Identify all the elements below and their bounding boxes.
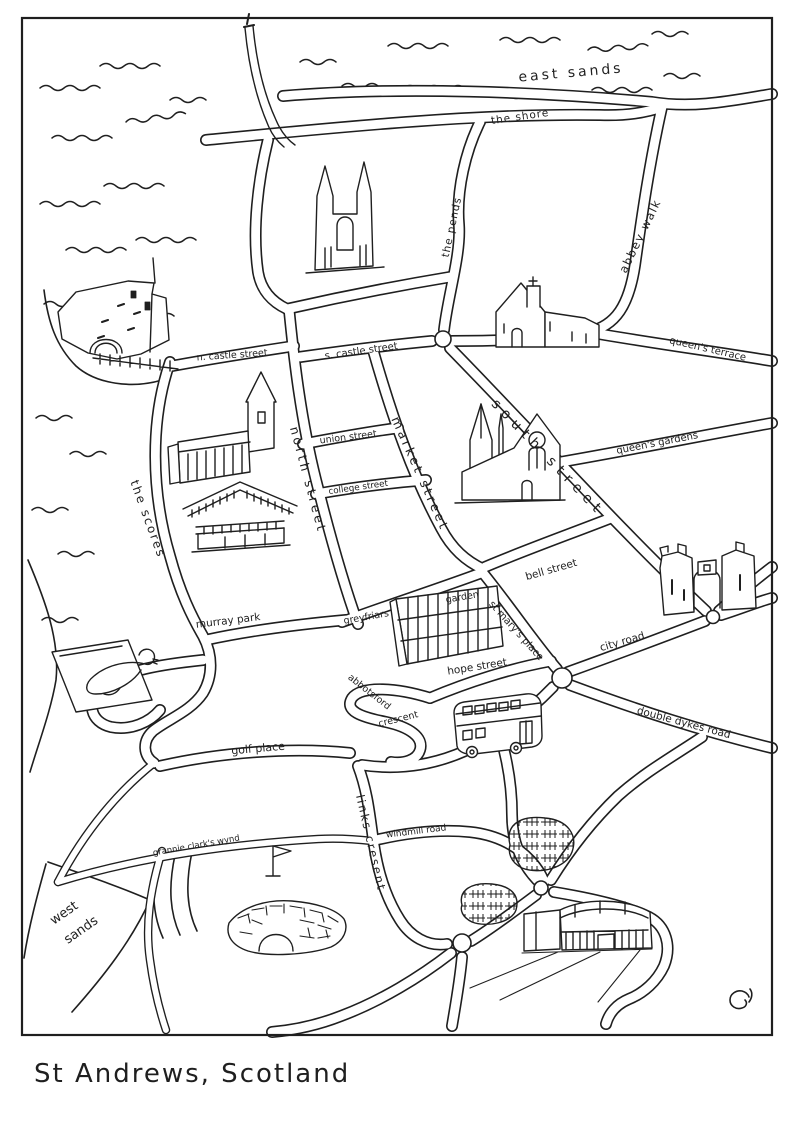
west-port-arch-icon — [660, 542, 756, 615]
library-building-icon — [183, 482, 297, 552]
label-bell-street: bell street — [524, 557, 578, 583]
label-market-street: market street — [388, 414, 452, 533]
page-title: St Andrews, Scotland — [34, 1059, 350, 1089]
cathedral-ruins-icon — [306, 162, 384, 273]
roundabout-west-port — [707, 611, 720, 624]
golf-flag-icon — [266, 846, 291, 876]
label-union-street: union street — [319, 429, 378, 447]
roundabout-links — [534, 881, 548, 895]
label-double-dykes-road: double dykes road — [636, 705, 732, 742]
artist-signature-icon — [730, 989, 752, 1009]
roundabout-south-links — [453, 934, 471, 952]
st-salvators-chapel-icon — [168, 372, 276, 484]
caravan-hatching-icon — [509, 817, 574, 870]
swilcan-bridge-icon — [228, 901, 346, 955]
map-frame — [22, 18, 772, 1035]
chapel-icon — [496, 277, 599, 347]
label-east-sands: east sands — [518, 60, 624, 85]
caravan-hatching-icon — [461, 884, 517, 925]
seal-icon — [52, 640, 158, 712]
double-decker-bus-icon — [454, 694, 542, 758]
castle-ruins-icon — [58, 258, 178, 371]
roundabout-city-road — [552, 668, 572, 688]
roundabout-south-street — [435, 331, 451, 347]
label-the-shore: the shore — [490, 107, 550, 127]
map-canvas: east sands the shore the pends abbey wal… — [0, 0, 794, 1123]
